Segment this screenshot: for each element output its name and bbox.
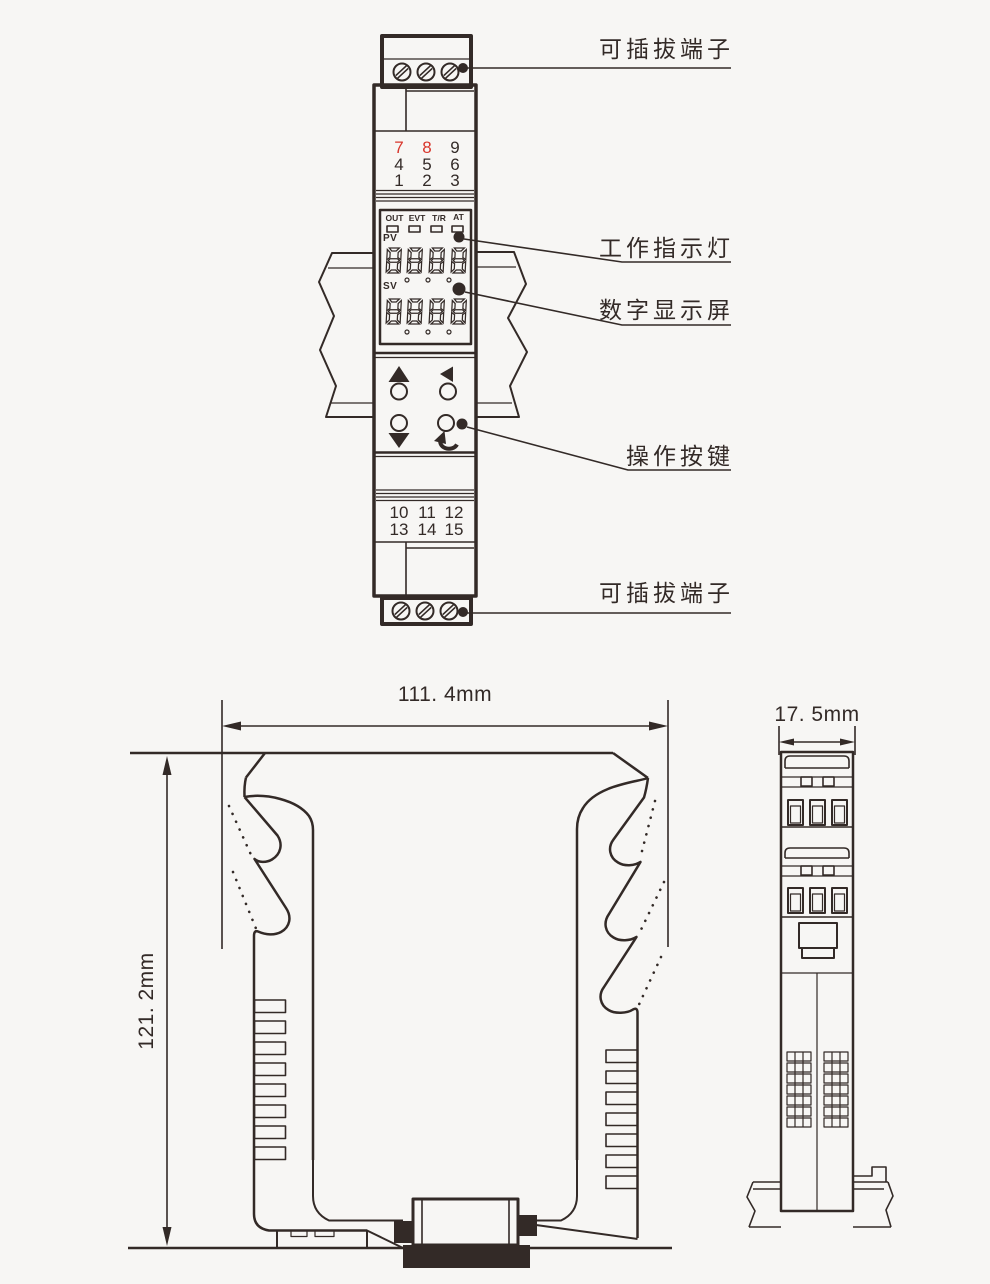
callout-dot xyxy=(453,283,466,296)
module-end-outline xyxy=(781,752,853,1211)
left-arrow-icon xyxy=(440,367,453,383)
dimension-width-label: 111. 4mm xyxy=(383,684,507,706)
dimension-height-label: 121. 2mm xyxy=(136,939,158,1063)
callout-label-buttons: 操作按键 xyxy=(556,444,734,468)
led-tr xyxy=(431,226,442,232)
screw-terminal-icon xyxy=(417,603,434,620)
screw-terminal-icon xyxy=(394,64,411,81)
led-label-tr: T/R xyxy=(428,214,450,223)
depth-dimension xyxy=(779,726,855,755)
sv-display xyxy=(386,299,466,334)
left-button xyxy=(440,384,456,400)
drawing-linework xyxy=(0,0,990,1284)
height-dimension xyxy=(163,756,172,1246)
led-out xyxy=(387,226,398,232)
enter-button xyxy=(438,415,454,431)
terminal-number: 1 xyxy=(385,172,413,190)
din-rail-clamp xyxy=(394,1199,537,1268)
terminal-number: 3 xyxy=(441,172,469,190)
callout-dot xyxy=(458,63,468,73)
led-label-out: OUT xyxy=(384,214,405,223)
display-panel xyxy=(380,210,731,344)
callout-dot xyxy=(457,419,468,430)
vent-grid-left xyxy=(787,1052,811,1127)
callout-label-top-terminal: 可插拔端子 xyxy=(556,37,734,61)
led-label-evt: EVT xyxy=(407,214,427,223)
technical-drawing-canvas: 可插拔端子 工作指示灯 数字显示屏 操作按键 可插拔端子 OUT EVT T/R… xyxy=(0,0,990,1284)
up-button xyxy=(391,384,407,400)
dotted-hinge-line xyxy=(641,801,655,855)
dimension-depth-label: 17. 5mm xyxy=(755,704,879,726)
down-button xyxy=(391,415,407,431)
led-label-at: AT xyxy=(450,213,467,222)
screw-terminal-icon xyxy=(393,603,410,620)
terminal-windows-lower xyxy=(788,888,847,913)
module-profile xyxy=(229,753,664,1268)
callout-label-indicator: 工作指示灯 xyxy=(556,236,734,260)
vent-slots-right xyxy=(606,1050,638,1189)
dotted-hinge-line xyxy=(636,957,661,1011)
end-dimension-view xyxy=(747,726,893,1227)
rail-clip xyxy=(853,1167,886,1182)
terminal-windows-upper xyxy=(788,800,847,825)
terminal-number: 13 xyxy=(384,521,414,539)
dotted-hinge-line xyxy=(229,806,252,857)
screw-terminal-icon xyxy=(441,603,458,620)
pv-label: PV xyxy=(383,234,397,245)
up-arrow-icon xyxy=(389,366,410,382)
dotted-hinge-line xyxy=(638,882,664,936)
vent-grid-right xyxy=(824,1052,848,1127)
callout-dot xyxy=(458,607,468,617)
din-rail-front xyxy=(319,252,527,417)
led-evt xyxy=(409,226,420,232)
callout-label-display: 数字显示屏 xyxy=(556,298,734,322)
front-view xyxy=(319,36,731,624)
down-arrow-icon xyxy=(389,433,410,448)
mount-bracket-foot xyxy=(802,948,834,958)
pv-display xyxy=(386,248,466,282)
side-dimension-view xyxy=(128,700,672,1268)
sv-label: SV xyxy=(383,282,397,293)
dotted-hinge-line xyxy=(233,872,257,931)
terminal-number: 15 xyxy=(439,521,469,539)
mount-bracket xyxy=(799,923,837,948)
screw-terminal-icon xyxy=(442,64,459,81)
terminal-number: 2 xyxy=(413,172,441,190)
callout-dot xyxy=(454,232,465,243)
rail-slide-bracket xyxy=(277,1231,403,1249)
callout-label-bottom-terminal: 可插拔端子 xyxy=(556,581,734,605)
din-rail-end xyxy=(747,1167,893,1227)
vent-slots-left xyxy=(255,1000,286,1160)
return-arrowhead xyxy=(434,431,446,444)
terminal-number: 14 xyxy=(412,521,442,539)
led-at xyxy=(452,226,463,232)
screw-terminal-icon xyxy=(418,64,435,81)
